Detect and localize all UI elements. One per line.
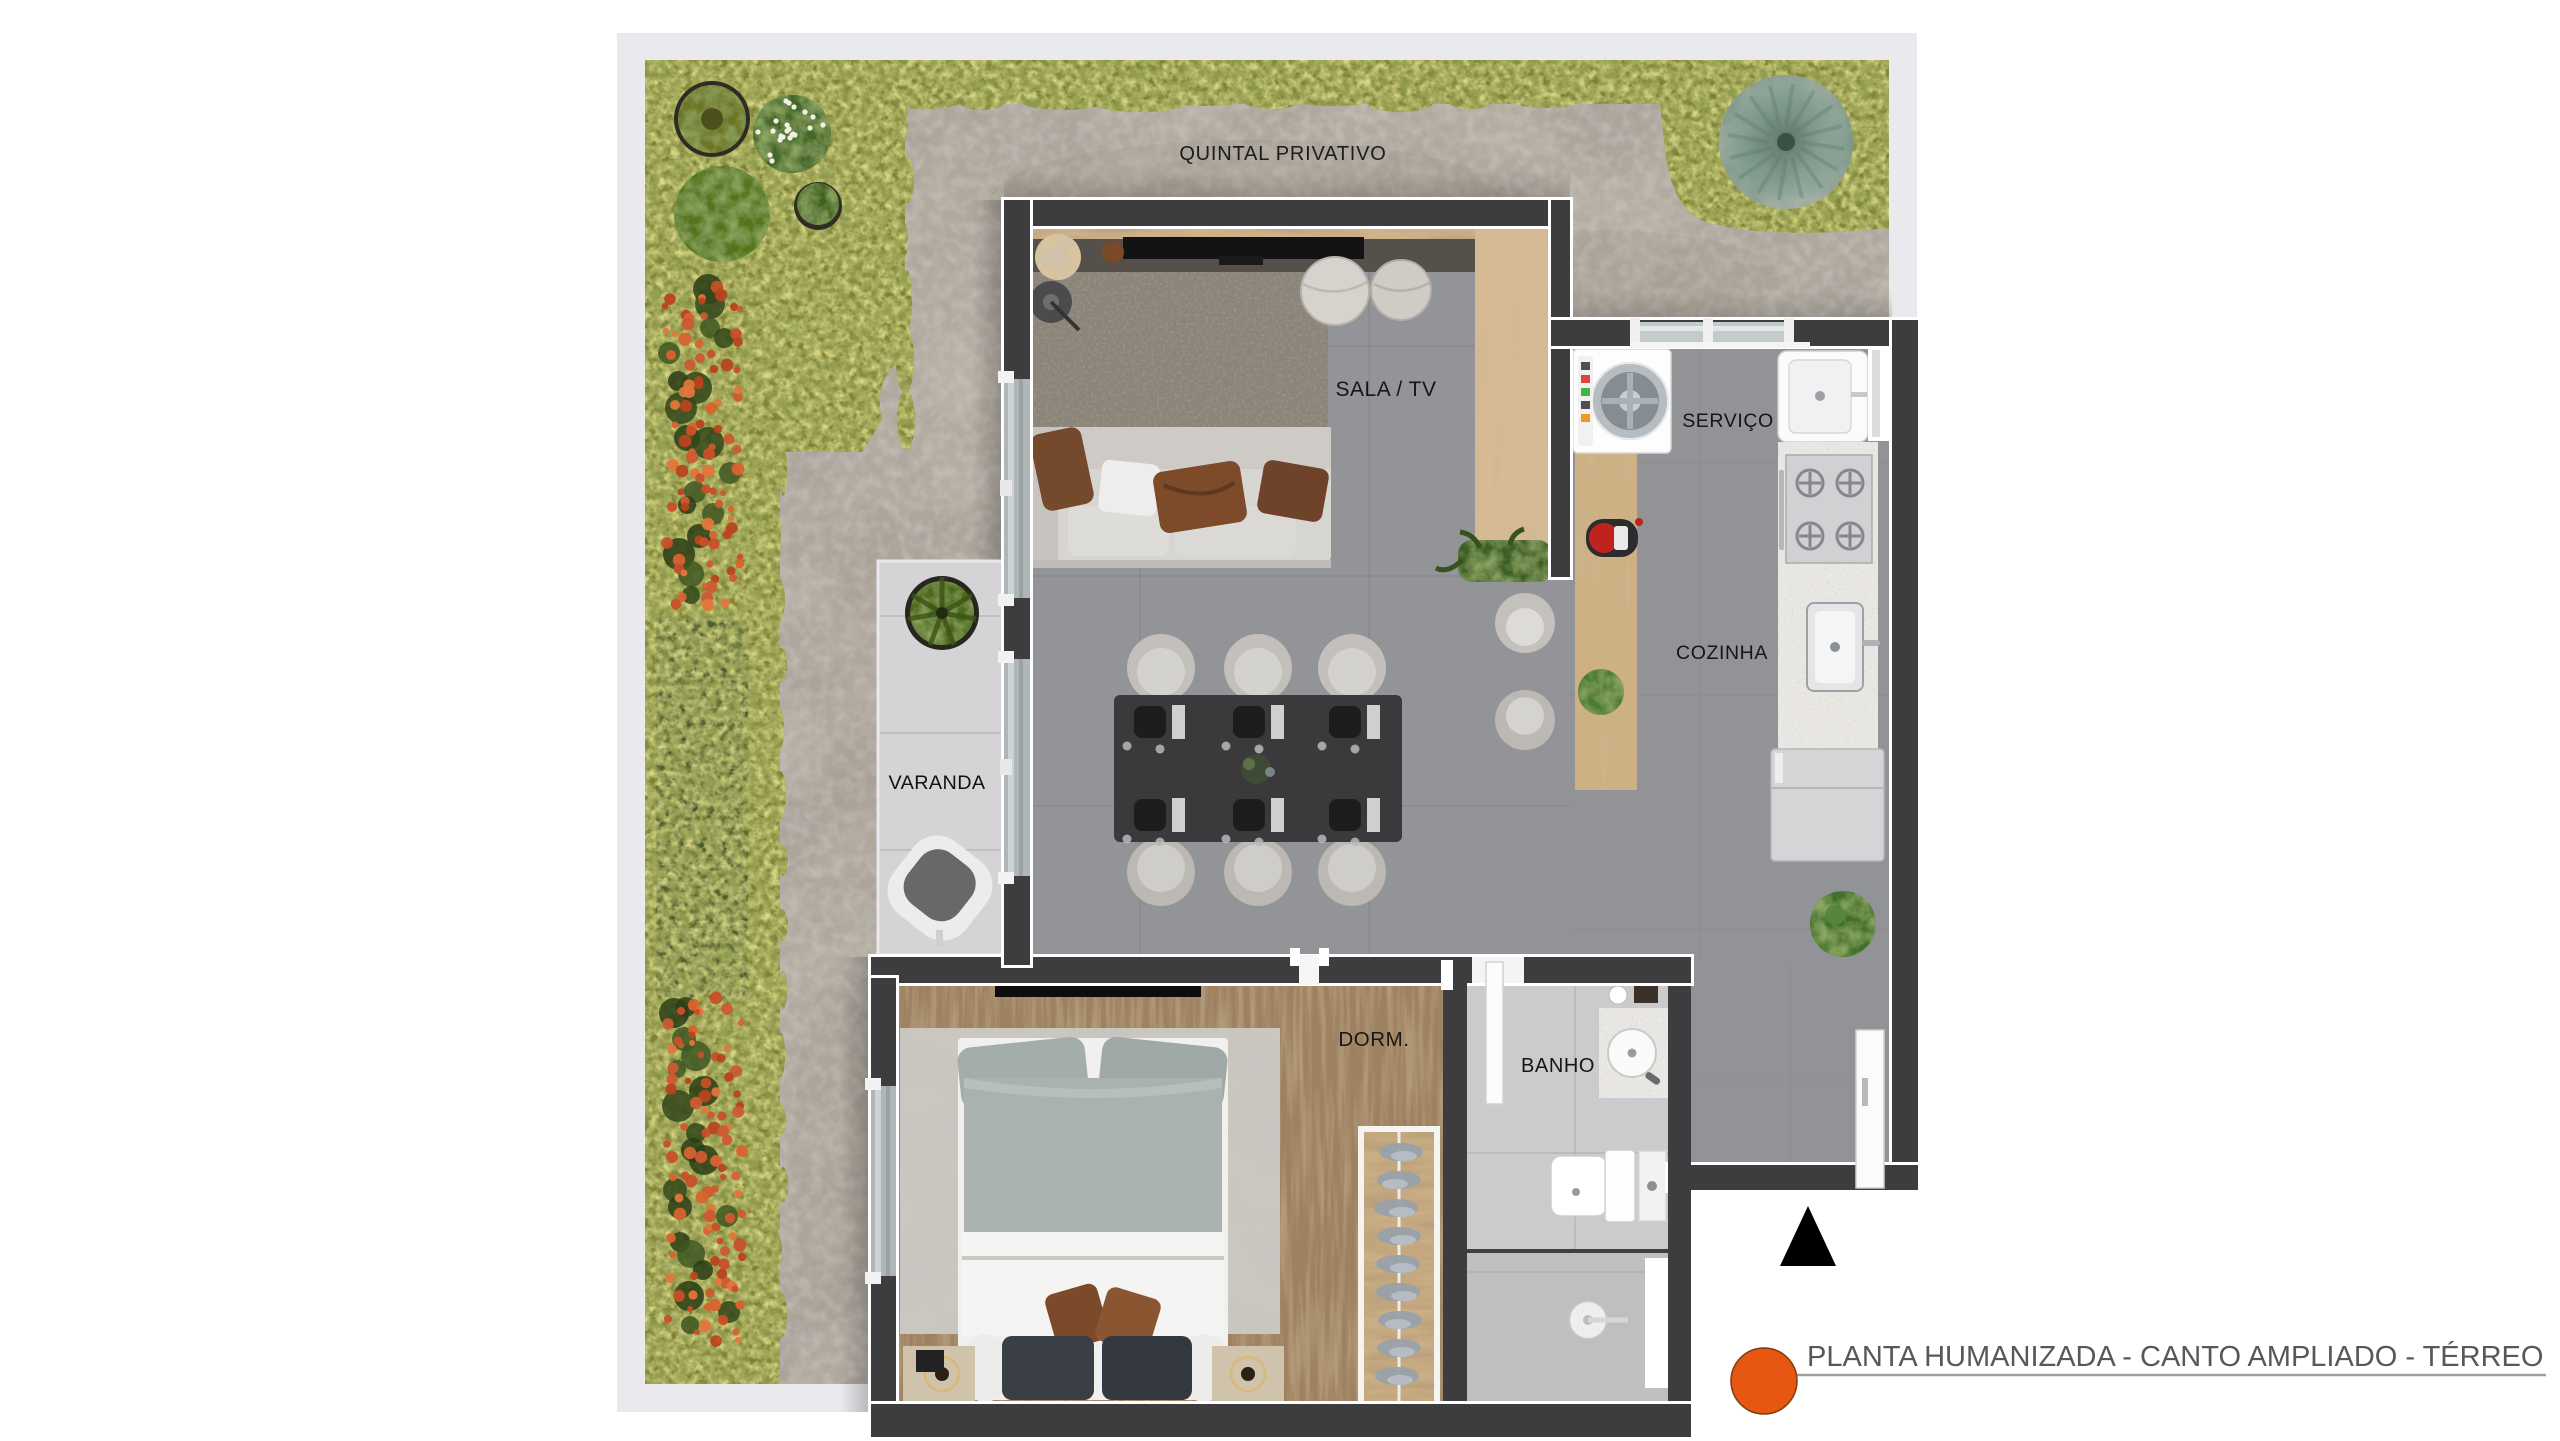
svg-text:SERVIÇO: SERVIÇO	[1682, 410, 1774, 432]
svg-text:DORM.: DORM.	[1338, 1028, 1409, 1051]
svg-text:PLANTA HUMANIZADA - CANTO AMPL: PLANTA HUMANIZADA - CANTO AMPLIADO - TÉR…	[1807, 1340, 2543, 1373]
svg-text:QUINTAL PRIVATIVO: QUINTAL PRIVATIVO	[1179, 143, 1386, 165]
svg-text:SALA / TV: SALA / TV	[1336, 378, 1437, 401]
svg-text:COZINHA: COZINHA	[1676, 642, 1768, 664]
svg-text:BANHO: BANHO	[1521, 1055, 1595, 1077]
svg-text:VARANDA: VARANDA	[889, 772, 986, 794]
